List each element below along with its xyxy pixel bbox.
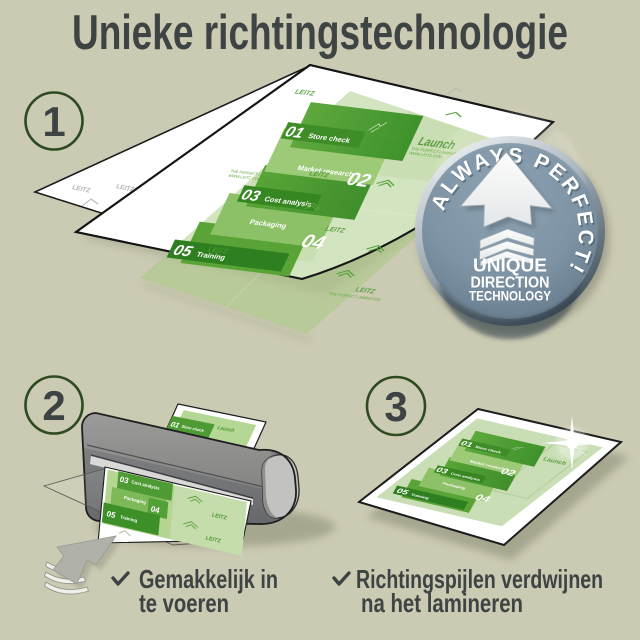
svg-text:TECHNOLOGY: TECHNOLOGY [469, 288, 552, 304]
svg-text:1: 1 [42, 98, 65, 145]
svg-text:Unieke richtingstechnologie: Unieke richtingstechnologie [72, 6, 568, 60]
svg-text:2: 2 [42, 382, 65, 429]
svg-text:te voeren: te voeren [139, 588, 229, 618]
svg-text:3: 3 [384, 383, 407, 430]
svg-text:na het lamineren: na het lamineren [361, 588, 523, 618]
svg-text:UNIQUE: UNIQUE [473, 256, 547, 276]
